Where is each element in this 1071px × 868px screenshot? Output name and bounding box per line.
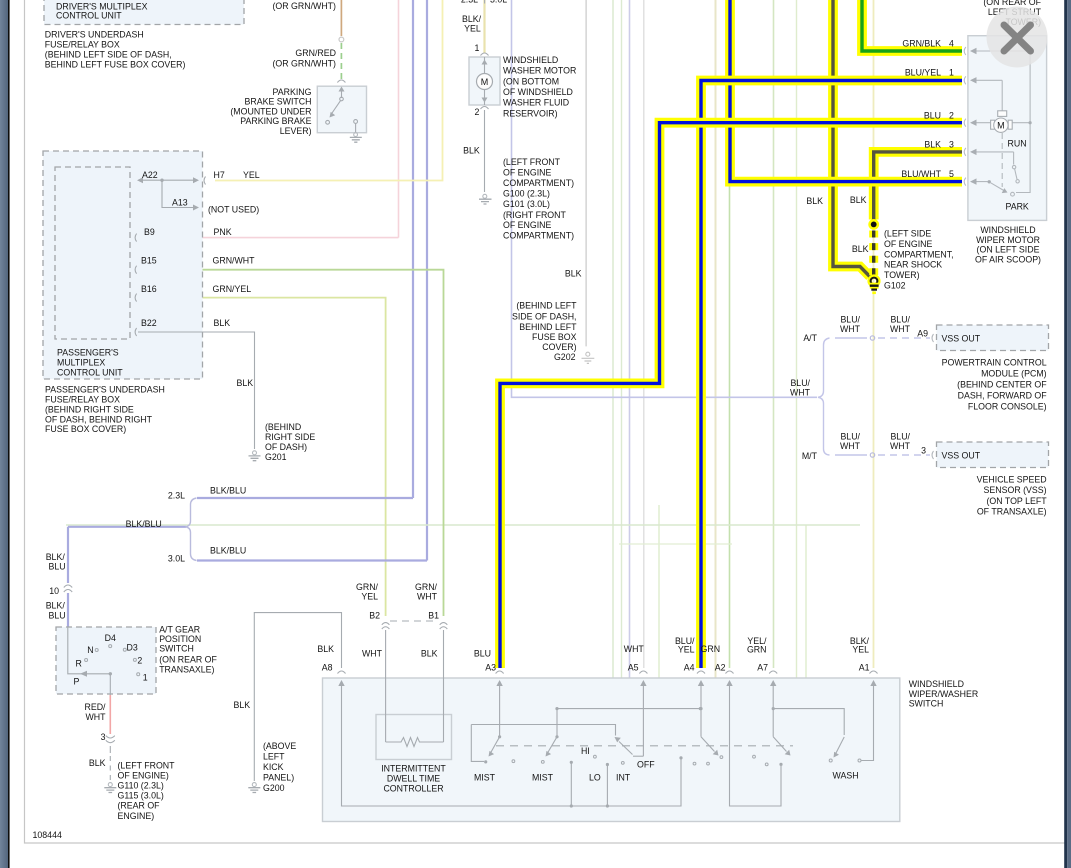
svg-text:H7: H7	[214, 170, 225, 180]
svg-text:(NOT USED): (NOT USED)	[208, 205, 259, 215]
svg-text:(OR GRN/WHT): (OR GRN/WHT)	[272, 58, 336, 68]
svg-text:COVER): COVER)	[542, 342, 576, 352]
svg-text:WHT: WHT	[840, 324, 861, 334]
svg-text:M: M	[481, 77, 489, 87]
svg-text:108444: 108444	[33, 830, 62, 840]
svg-text:DASH, FORWARD OF: DASH, FORWARD OF	[958, 391, 1048, 401]
svg-text:BLU/: BLU/	[890, 315, 910, 325]
svg-text:2: 2	[475, 107, 480, 117]
svg-text:(ON REAR OF: (ON REAR OF	[983, 0, 1041, 7]
svg-text:2: 2	[137, 655, 142, 665]
svg-text:1: 1	[143, 673, 148, 683]
svg-text:(RIGHT FRONT: (RIGHT FRONT	[503, 210, 567, 220]
svg-text:BRAKE SWITCH: BRAKE SWITCH	[245, 97, 312, 107]
svg-text:GRN/BLK: GRN/BLK	[902, 39, 941, 49]
svg-text:BLK/BLU: BLK/BLU	[126, 519, 162, 529]
svg-text:GRN/: GRN/	[415, 582, 438, 592]
svg-text:G200: G200	[263, 783, 285, 793]
svg-text:BLU/: BLU/	[890, 432, 910, 442]
svg-text:LEVER): LEVER)	[280, 126, 312, 136]
svg-text:BEHIND LEFT FUSE BOX COVER): BEHIND LEFT FUSE BOX COVER)	[45, 60, 186, 70]
svg-text:3: 3	[101, 732, 106, 742]
svg-text:MIST: MIST	[532, 773, 554, 783]
svg-text:PANEL): PANEL)	[263, 773, 294, 783]
svg-text:PARKING BRAKE: PARKING BRAKE	[240, 116, 311, 126]
svg-text:G100 (2.3L): G100 (2.3L)	[503, 189, 550, 199]
svg-text:B2: B2	[369, 611, 380, 621]
svg-text:PASSENGER'S UNDERDASH: PASSENGER'S UNDERDASH	[45, 384, 165, 394]
svg-text:(ON LEFT SIDE: (ON LEFT SIDE	[977, 245, 1040, 255]
svg-text:BEHIND LEFT: BEHIND LEFT	[519, 322, 577, 332]
svg-text:BLK: BLK	[234, 700, 251, 710]
svg-text:M/T: M/T	[802, 451, 818, 461]
svg-text:BLK/: BLK/	[462, 14, 482, 24]
svg-text:WHT: WHT	[840, 441, 861, 451]
svg-text:(ON TOP LEFT: (ON TOP LEFT	[986, 496, 1047, 506]
svg-text:POSITION: POSITION	[159, 634, 201, 644]
svg-text:M: M	[997, 120, 1005, 130]
svg-text:TOWER): TOWER)	[884, 270, 920, 280]
svg-text:BLK: BLK	[89, 758, 106, 768]
svg-text:BLU/: BLU/	[840, 432, 860, 442]
svg-text:FLOOR CONSOLE): FLOOR CONSOLE)	[968, 402, 1047, 412]
svg-text:WASHER FLUID: WASHER FLUID	[503, 98, 569, 108]
svg-text:(BEHIND: (BEHIND	[265, 422, 301, 432]
svg-text:BLU: BLU	[474, 649, 491, 659]
svg-text:N: N	[87, 645, 93, 655]
svg-text:(REAR OF: (REAR OF	[118, 801, 161, 811]
svg-text:(ON REAR OF: (ON REAR OF	[159, 654, 217, 664]
svg-text:BLU/WHT: BLU/WHT	[901, 169, 941, 179]
svg-text:A2: A2	[715, 663, 726, 673]
svg-text:G110 (2.3L): G110 (2.3L)	[118, 781, 164, 791]
svg-text:GRN/WHT: GRN/WHT	[213, 256, 256, 266]
svg-text:INT: INT	[616, 773, 631, 783]
svg-text:BLK/: BLK/	[46, 601, 66, 611]
svg-text:A8: A8	[322, 663, 333, 673]
svg-text:B16: B16	[141, 284, 157, 294]
svg-text:G115 (3.0L): G115 (3.0L)	[118, 791, 164, 801]
svg-text:TRANSAXLE): TRANSAXLE)	[159, 664, 214, 674]
svg-text:R: R	[76, 658, 82, 668]
svg-text:PARKING: PARKING	[273, 87, 312, 97]
svg-text:3: 3	[949, 140, 954, 150]
svg-text:CONTROL UNIT: CONTROL UNIT	[56, 10, 122, 20]
svg-text:NEAR SHOCK: NEAR SHOCK	[884, 260, 942, 270]
svg-text:B1: B1	[428, 611, 439, 621]
svg-text:OF ENGINE: OF ENGINE	[503, 220, 552, 230]
svg-text:WINDSHIELD: WINDSHIELD	[980, 225, 1035, 235]
svg-text:FUSE BOX: FUSE BOX	[532, 332, 577, 342]
svg-text:A1: A1	[859, 663, 870, 673]
svg-text:(OR GRN/WHT): (OR GRN/WHT)	[272, 1, 336, 11]
svg-text:WHT: WHT	[362, 649, 383, 659]
svg-text:KICK: KICK	[263, 762, 284, 772]
svg-text:D4: D4	[105, 633, 116, 643]
svg-text:GRN: GRN	[701, 644, 721, 654]
svg-text:BLK/BLU: BLK/BLU	[210, 546, 246, 556]
svg-text:A5: A5	[628, 663, 639, 673]
svg-text:2.3L: 2.3L	[461, 0, 478, 5]
svg-text:1: 1	[949, 68, 954, 78]
svg-text:PNK: PNK	[214, 227, 232, 237]
svg-text:BLK/BLU: BLK/BLU	[210, 486, 246, 496]
svg-text:BLU: BLU	[49, 562, 66, 572]
svg-text:YEL: YEL	[361, 592, 378, 602]
svg-text:BLU/YEL: BLU/YEL	[905, 68, 941, 78]
svg-text:WHT: WHT	[85, 712, 106, 722]
svg-text:A4: A4	[684, 663, 695, 673]
svg-text:(LEFT FRONT: (LEFT FRONT	[503, 157, 561, 167]
svg-text:RUN: RUN	[1008, 139, 1027, 149]
svg-text:HI: HI	[581, 746, 590, 756]
svg-text:1: 1	[475, 43, 480, 53]
svg-text:DWELL TIME: DWELL TIME	[387, 774, 440, 784]
svg-text:RED/: RED/	[84, 702, 106, 712]
svg-text:4: 4	[949, 39, 954, 49]
svg-text:LO: LO	[589, 773, 601, 783]
svg-text:2: 2	[949, 111, 954, 121]
svg-text:WINDSHIELD: WINDSHIELD	[503, 55, 558, 65]
svg-text:A22: A22	[142, 170, 158, 180]
svg-text:YEL: YEL	[852, 645, 869, 655]
svg-text:A13: A13	[172, 198, 188, 208]
svg-text:LEFT: LEFT	[263, 752, 285, 762]
svg-text:3: 3	[921, 446, 926, 456]
svg-text:P: P	[74, 677, 80, 687]
svg-text:GRN: GRN	[747, 645, 767, 655]
svg-text:GRN/: GRN/	[356, 582, 379, 592]
svg-text:BLU: BLU	[924, 111, 941, 121]
svg-text:YEL: YEL	[678, 645, 695, 655]
svg-text:GRN/YEL: GRN/YEL	[213, 284, 252, 294]
svg-text:RIGHT SIDE: RIGHT SIDE	[265, 432, 315, 442]
svg-text:POWERTRAIN CONTROL: POWERTRAIN CONTROL	[942, 358, 1047, 368]
svg-text:INTERMITTENT: INTERMITTENT	[381, 764, 446, 774]
svg-text:A/T GEAR: A/T GEAR	[159, 625, 200, 635]
svg-text:WHT: WHT	[890, 324, 911, 334]
svg-text:G102: G102	[884, 281, 906, 291]
svg-text:MIST: MIST	[474, 773, 496, 783]
svg-text:WHT: WHT	[790, 388, 811, 398]
svg-text:G202: G202	[554, 352, 576, 362]
svg-text:BLU/: BLU/	[840, 315, 860, 325]
svg-text:COMPARTMENT): COMPARTMENT)	[503, 231, 574, 241]
svg-text:(BEHIND RIGHT SIDE: (BEHIND RIGHT SIDE	[45, 404, 134, 414]
svg-text:(BEHIND LEFT: (BEHIND LEFT	[516, 300, 577, 310]
svg-text:ENGINE): ENGINE)	[118, 811, 155, 821]
svg-text:BLK: BLK	[463, 146, 480, 156]
svg-text:SENSOR (VSS): SENSOR (VSS)	[984, 485, 1047, 495]
svg-text:FUSE BOX COVER): FUSE BOX COVER)	[45, 424, 126, 434]
svg-text:OF WINDSHIELD: OF WINDSHIELD	[503, 87, 573, 97]
svg-text:D3: D3	[127, 642, 138, 652]
svg-text:A/T: A/T	[803, 333, 817, 343]
svg-text:WASHER MOTOR: WASHER MOTOR	[503, 66, 576, 76]
svg-text:BLK: BLK	[852, 244, 869, 254]
svg-text:WHT: WHT	[890, 441, 911, 451]
svg-text:VSS OUT: VSS OUT	[942, 451, 981, 461]
svg-text:YEL: YEL	[243, 170, 260, 180]
svg-text:10: 10	[49, 586, 59, 596]
svg-text:OFF: OFF	[637, 760, 655, 770]
svg-text:(ABOVE: (ABOVE	[263, 741, 296, 751]
svg-text:BLK: BLK	[924, 140, 941, 150]
svg-text:(LEFT FRONT: (LEFT FRONT	[118, 760, 176, 770]
svg-text:BLK: BLK	[317, 644, 334, 654]
svg-text:WIPER/WASHER: WIPER/WASHER	[909, 689, 979, 699]
svg-text:WHT: WHT	[624, 644, 645, 654]
svg-text:A7: A7	[757, 663, 768, 673]
svg-text:B9: B9	[144, 227, 155, 237]
svg-text:5: 5	[949, 169, 954, 179]
svg-text:SWITCH: SWITCH	[159, 644, 194, 654]
svg-text:COMPARTMENT,: COMPARTMENT,	[884, 249, 954, 259]
svg-text:WHT: WHT	[417, 592, 438, 602]
svg-text:BLU: BLU	[49, 611, 66, 621]
svg-text:GRN/RED: GRN/RED	[295, 48, 336, 58]
svg-text:CONTROL UNIT: CONTROL UNIT	[57, 367, 123, 377]
svg-text:B22: B22	[141, 318, 157, 328]
svg-text:COMPARTMENT): COMPARTMENT)	[503, 178, 574, 188]
svg-text:BLK/: BLK/	[46, 552, 66, 562]
svg-text:(LEFT SIDE: (LEFT SIDE	[884, 229, 931, 239]
svg-text:BLK: BLK	[421, 649, 438, 659]
svg-text:FUSE/RELAY BOX: FUSE/RELAY BOX	[45, 39, 120, 49]
svg-text:BLU/: BLU/	[790, 378, 810, 388]
svg-text:VSS OUT: VSS OUT	[942, 334, 981, 344]
svg-text:OF ENGINE: OF ENGINE	[503, 168, 552, 178]
svg-text:(BEHIND LEFT SIDE OF DASH,: (BEHIND LEFT SIDE OF DASH,	[45, 50, 172, 60]
svg-text:(BEHIND CENTER OF: (BEHIND CENTER OF	[957, 380, 1047, 390]
svg-text:BLK: BLK	[850, 195, 867, 205]
svg-text:OF ENGINE): OF ENGINE)	[118, 770, 169, 780]
svg-text:OF TRANSAXLE): OF TRANSAXLE)	[977, 507, 1047, 517]
svg-text:FUSE/RELAY BOX: FUSE/RELAY BOX	[45, 394, 120, 404]
svg-text:MULTIPLEX: MULTIPLEX	[57, 358, 105, 368]
svg-text:2.3L: 2.3L	[168, 491, 185, 501]
svg-text:PARK: PARK	[1006, 202, 1029, 212]
svg-text:BLK: BLK	[806, 196, 823, 206]
svg-text:YEL: YEL	[464, 23, 481, 33]
svg-text:A9: A9	[917, 329, 928, 339]
svg-text:OF AIR SCOOP): OF AIR SCOOP)	[975, 254, 1041, 264]
svg-text:3.0L: 3.0L	[490, 0, 507, 5]
svg-text:WASH: WASH	[833, 771, 859, 781]
svg-text:OF DASH, BEHIND RIGHT: OF DASH, BEHIND RIGHT	[45, 414, 153, 424]
svg-text:OF ENGINE: OF ENGINE	[884, 239, 933, 249]
svg-text:VEHICLE SPEED: VEHICLE SPEED	[977, 475, 1047, 485]
svg-text:G101 (3.0L): G101 (3.0L)	[503, 199, 550, 209]
svg-text:BLK: BLK	[237, 378, 254, 388]
svg-text:PASSENGER'S: PASSENGER'S	[57, 348, 119, 358]
svg-text:(MOUNTED UNDER: (MOUNTED UNDER	[230, 106, 311, 116]
svg-text:DRIVER'S UNDERDASH: DRIVER'S UNDERDASH	[45, 30, 144, 40]
svg-text:SWITCH: SWITCH	[909, 699, 944, 709]
svg-text:SIDE OF DASH,: SIDE OF DASH,	[512, 312, 577, 322]
svg-text:RESERVOIR): RESERVOIR)	[503, 108, 558, 118]
svg-text:G201: G201	[265, 452, 287, 462]
svg-text:B15: B15	[141, 256, 157, 266]
svg-text:CONTROLLER: CONTROLLER	[383, 784, 443, 794]
svg-text:(ON BOTTOM: (ON BOTTOM	[503, 76, 559, 86]
svg-text:3.0L: 3.0L	[168, 554, 185, 564]
svg-text:A3: A3	[485, 663, 496, 673]
svg-text:OF DASH): OF DASH)	[265, 442, 307, 452]
svg-text:WIPER MOTOR: WIPER MOTOR	[976, 235, 1040, 245]
svg-text:BLK: BLK	[214, 318, 231, 328]
svg-text:WINDSHIELD: WINDSHIELD	[909, 679, 964, 689]
svg-text:MODULE (PCM): MODULE (PCM)	[981, 369, 1047, 379]
svg-text:BLK: BLK	[565, 269, 582, 279]
